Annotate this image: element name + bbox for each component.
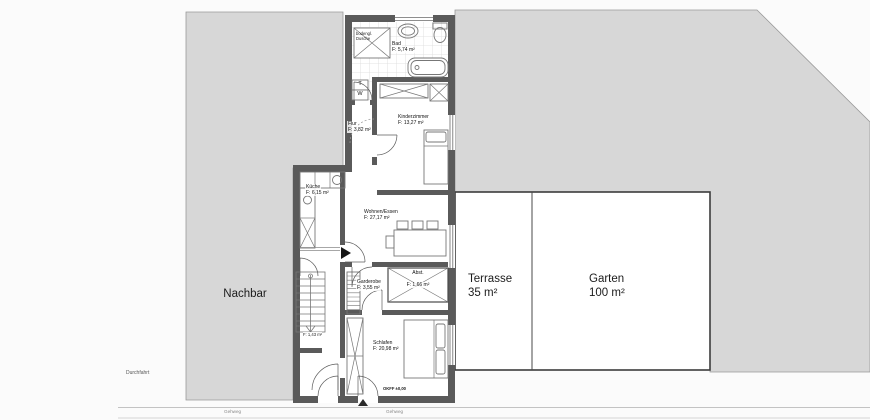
room-label-garderobe: GarderobeF: 3,55 m² bbox=[356, 279, 382, 291]
room-label-nische: F: 1,43 m² bbox=[303, 332, 322, 337]
room-label-dusche: bodengl. Dusche bbox=[356, 31, 372, 41]
room-label-kueche: KücheF: 6,15 m² bbox=[305, 184, 330, 196]
room-label-flur: FlurF: 3,82 m² bbox=[347, 121, 372, 133]
zone-label-gehweg-right: Gehweg bbox=[386, 409, 403, 414]
zone-label-durchfahrt: Durchfahrt bbox=[126, 370, 149, 376]
zone-label-terrasse: Terrasse 35 m² bbox=[468, 272, 512, 300]
washer-label: W bbox=[352, 91, 368, 97]
room-label-wohnen-essen: Wohnen/EssenF: 27,17 m² bbox=[363, 209, 399, 221]
floor-plan-svg bbox=[0, 0, 870, 420]
room-label-kinderzimmer: KinderzimmerF: 13,27 m² bbox=[397, 114, 430, 126]
floor-plan-page: Nachbar Terrasse 35 m² Garten 100 m² Dur… bbox=[0, 0, 870, 420]
terrasse-area: 35 m² bbox=[468, 286, 512, 300]
zone-label-garten: Garten 100 m² bbox=[589, 272, 625, 300]
bed-kinderzimmer bbox=[424, 130, 448, 184]
bathtub-icon bbox=[408, 58, 448, 77]
bed-schlafen bbox=[404, 320, 448, 378]
zone-label-gehweg-left: Gehweg bbox=[224, 409, 241, 414]
exterior-zones bbox=[186, 10, 870, 400]
garten-area: 100 m² bbox=[589, 286, 625, 300]
room-label-bad: BadF: 5,74 m² bbox=[391, 41, 416, 53]
terrasse-name: Terrasse bbox=[468, 272, 512, 286]
room-label-abstellraum: Abst. F: 1,66 m² bbox=[390, 270, 446, 288]
garten-name: Garten bbox=[589, 272, 625, 286]
room-label-schlafen: SchlafenF: 20,98 m² bbox=[372, 340, 400, 352]
dryer-label: T bbox=[352, 81, 368, 87]
zone-label-nachbar: Nachbar bbox=[200, 287, 290, 301]
floor-level-label: OKFF ±0,00 bbox=[383, 386, 406, 391]
